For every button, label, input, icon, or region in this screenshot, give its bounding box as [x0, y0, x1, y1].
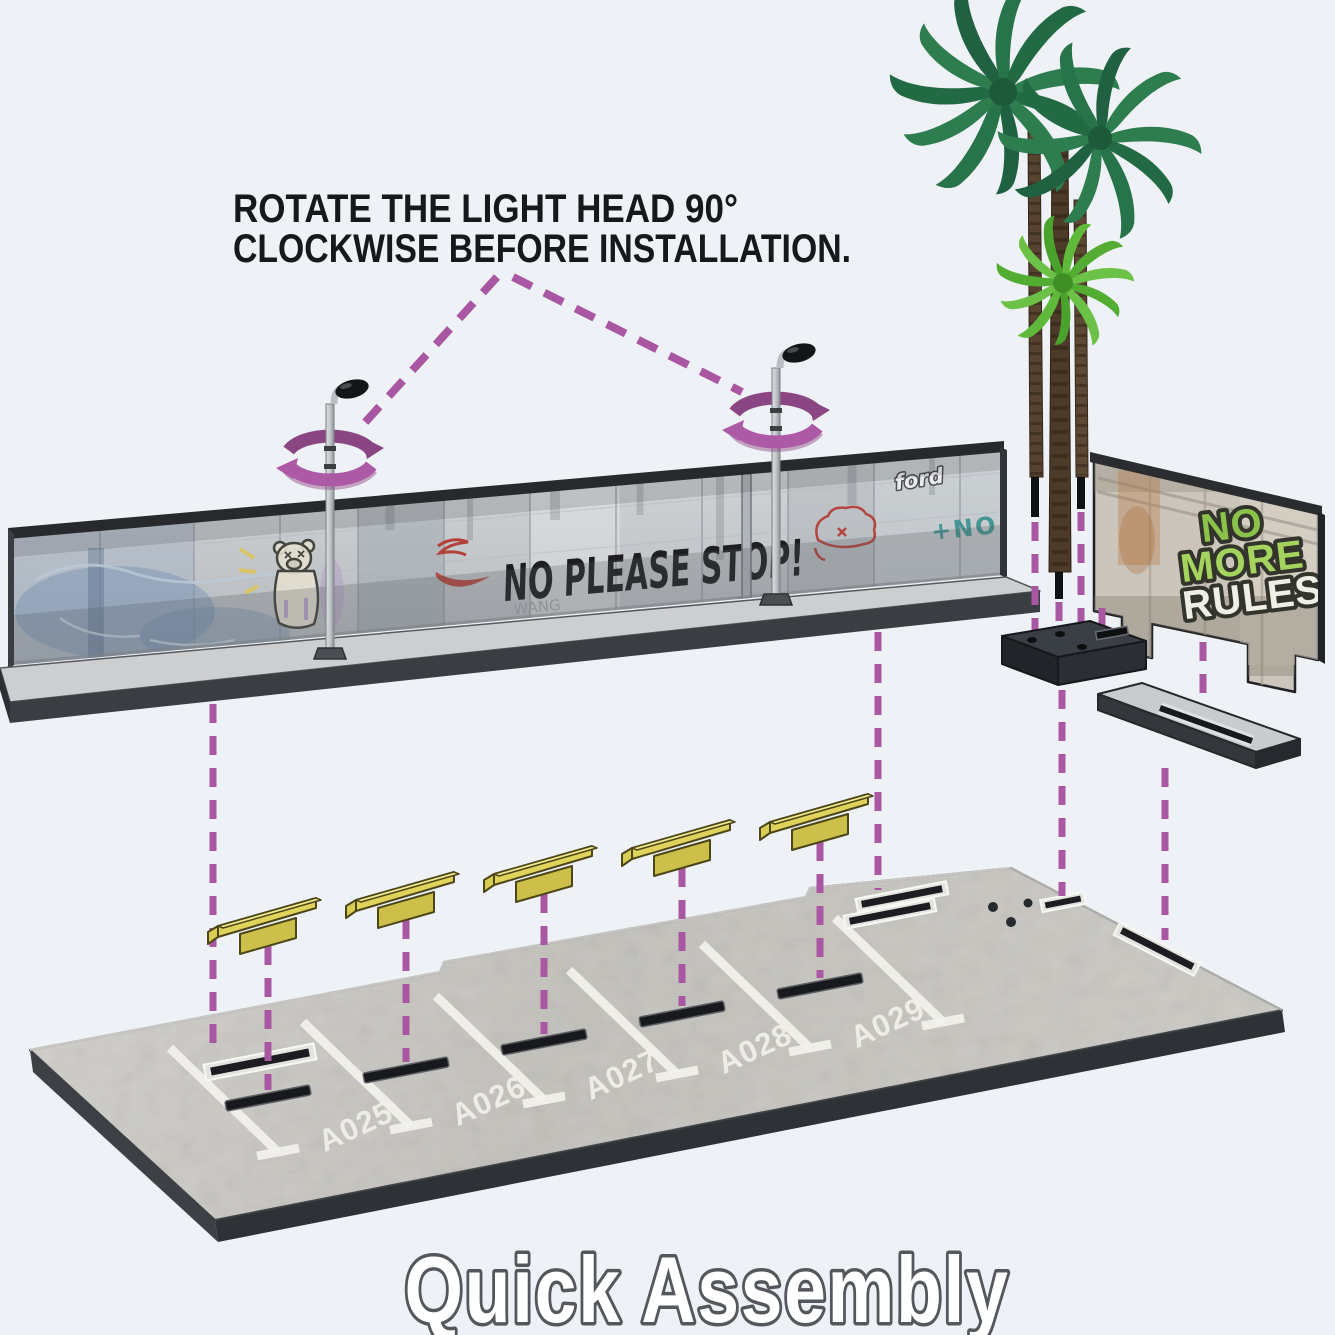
page-title: Quick Assembly: [405, 1237, 1010, 1335]
tree-peg: [1077, 477, 1085, 509]
tree-peg: [1031, 477, 1039, 517]
instruction-line2: CLOCKWISE BEFORE INSTALLATION.: [233, 227, 851, 271]
assembly-diagram: ROTATE THE LIGHT HEAD 90° CLOCKWISE BEFO…: [0, 0, 1335, 1335]
tree-peg: [1055, 572, 1063, 599]
instruction-line1: ROTATE THE LIGHT HEAD 90°: [233, 187, 738, 231]
